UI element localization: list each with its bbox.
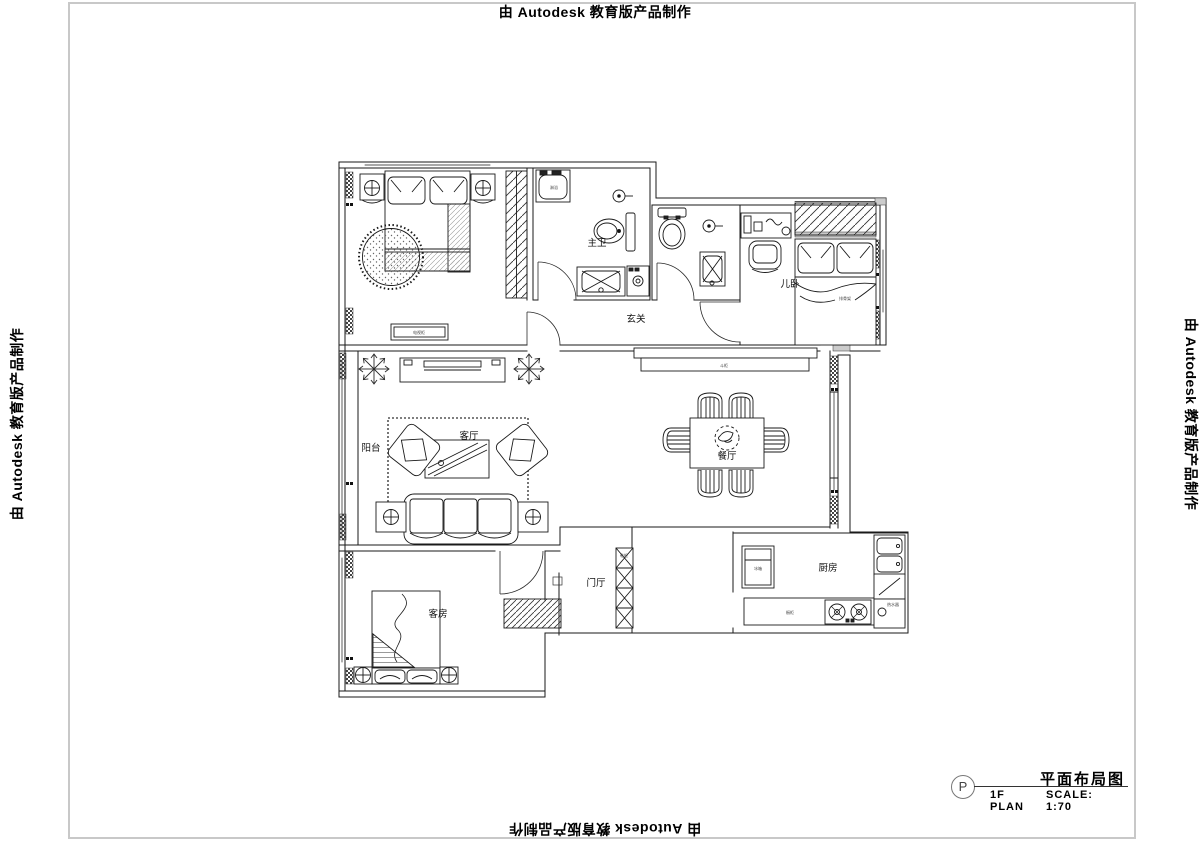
label-tv-cabinet: 电视柜 xyxy=(413,329,425,335)
living-room xyxy=(359,354,550,544)
master-bedroom xyxy=(359,171,527,340)
dining-room xyxy=(634,348,817,497)
label-shower: 淋浴 xyxy=(550,184,558,190)
plan-marker: P xyxy=(951,775,975,799)
room-label-dining: 餐厅 xyxy=(717,450,737,462)
room-label-guest: 客房 xyxy=(428,608,447,620)
room-label-master-bath: 主卫 xyxy=(587,237,607,249)
cad-sheet: 由 Autodesk 教育版产品制作 由 Autodesk 教育版产品制作 由 … xyxy=(0,0,1200,842)
plan-title: 平面布局图 xyxy=(975,768,1125,789)
kids-bedroom xyxy=(741,203,876,345)
guest-room xyxy=(354,591,458,684)
room-label-kids-room: 儿卧 xyxy=(780,278,800,290)
room-label-living: 客厅 xyxy=(459,430,479,442)
kitchen xyxy=(742,535,905,628)
guest-bath xyxy=(658,208,725,286)
room-label-foyer: 门厅 xyxy=(586,577,606,589)
room-label-kitchen: 厨房 xyxy=(818,562,837,574)
label-fridge: 冰箱 xyxy=(754,565,762,571)
floor-plan: 主卫 玄关 儿卧 阳台 客厅 餐厅 门厅 厨房 客房 电视柜 淋浴 排骨架 冰箱… xyxy=(0,0,1200,842)
scale-label: SCALE: 1:70 xyxy=(1046,789,1093,813)
label-bed-slats: 排骨架 xyxy=(839,295,851,301)
label-counter: 橱柜 xyxy=(786,609,794,615)
label-console: 斗柜 xyxy=(720,362,728,368)
plan-label: 1F PLAN xyxy=(990,789,1024,813)
label-shoe-cabinet: 鞋柜 xyxy=(620,552,628,558)
label-water-heater: 热水器 xyxy=(887,601,899,607)
room-label-hallway: 玄关 xyxy=(626,313,646,325)
foyer xyxy=(504,548,633,628)
room-label-balcony: 阳台 xyxy=(361,442,380,454)
